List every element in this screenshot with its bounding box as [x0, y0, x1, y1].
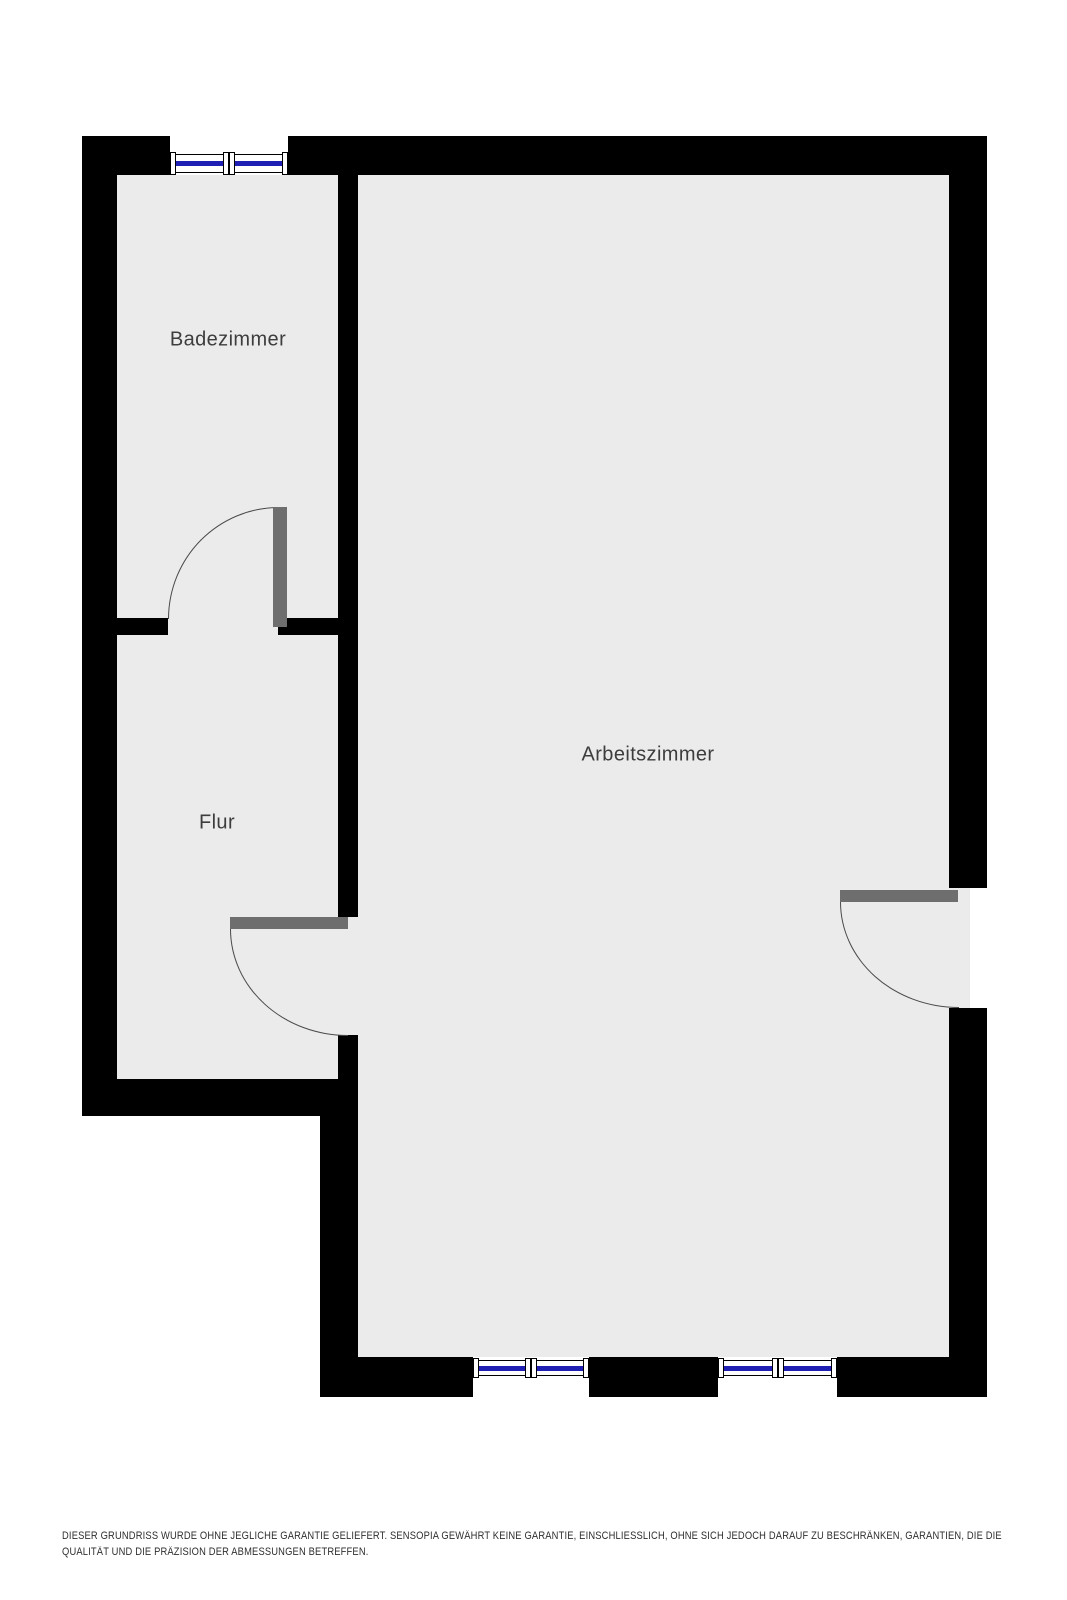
flur-label: Flur [199, 812, 235, 835]
wall-flur-bottom [82, 1079, 358, 1116]
badezimmer-window-icon [170, 154, 288, 173]
window-sash-tick [473, 1358, 479, 1378]
wall-mid-lower [338, 1035, 358, 1079]
badezimmer-door-leaf [273, 507, 287, 627]
disclaimer-line-2: QUALITÄT UND DIE PRÄZISION DER ABMESSUNG… [62, 1544, 997, 1560]
wall-right-upper [949, 136, 987, 888]
badezimmer-label: Badezimmer [170, 329, 286, 352]
arbeitszimmer-label: Arbeitszimmer [582, 744, 715, 767]
badezimmer-door-opening [168, 618, 278, 635]
wall-top-main-segment [288, 136, 987, 175]
window-sash-tick [583, 1358, 589, 1378]
entry-door-leaf [840, 890, 958, 902]
wall-bad-flur-segment-1 [117, 618, 168, 635]
wall-bottom-segment-1 [320, 1357, 473, 1397]
window-sash-tick [282, 152, 288, 175]
window-sash-tick [778, 1358, 784, 1378]
window-sash-tick [718, 1358, 724, 1378]
window-sash-tick [531, 1358, 537, 1378]
wall-mid-upper [338, 175, 358, 917]
arbeitszimmer-window-2-icon [718, 1360, 837, 1376]
window-sash-tick [229, 152, 235, 175]
floor-plan-page: Badezimmer Flur Arbeitszimmer DIESER GRU… [0, 0, 1067, 1600]
wall-bad-flur-segment-2 [278, 618, 338, 635]
window-sash-tick [170, 152, 176, 175]
wall-left-exterior [82, 136, 117, 1116]
wall-lower-left-exterior [320, 1116, 358, 1397]
disclaimer-line-1: DIESER GRUNDRISS WURDE OHNE JEGLICHE GAR… [62, 1528, 997, 1544]
wall-right-lower [949, 1008, 987, 1397]
disclaimer: DIESER GRUNDRISS WURDE OHNE JEGLICHE GAR… [62, 1528, 1067, 1560]
window-sash-tick [831, 1358, 837, 1378]
arbeitszimmer-window-1-icon [473, 1360, 589, 1376]
wall-bottom-segment-3 [837, 1357, 987, 1397]
wall-bottom-segment-2 [589, 1357, 718, 1397]
flur-door-leaf [230, 917, 348, 929]
